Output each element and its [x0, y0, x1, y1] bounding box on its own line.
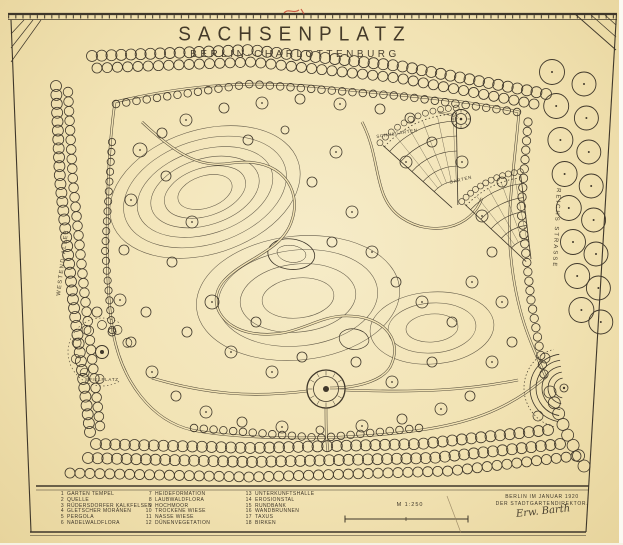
- legend-column-2: 7HEIDEFORMATION 8LAUBWALDFLORA 9HOCHMOOR…: [144, 492, 210, 527]
- scan-edge-right: [619, 0, 623, 545]
- plan-linework: [8, 9, 617, 536]
- page-subtitle: BERLIN·CHARLOTTENBURG: [120, 49, 470, 61]
- plan-sheet: WESTEND-ALLEE REICHS STRASSE SACHSENPLAT…: [0, 0, 623, 545]
- area-label-spielplatz: SPIELPLATZ: [85, 377, 119, 382]
- street-labels: WESTEND-ALLEE REICHS STRASSE: [56, 188, 561, 296]
- street-label-reichsstrasse: REICHS STRASSE: [551, 188, 561, 269]
- legend-column-1: 1GARTEN TEMPEL 2QUELLE 3RÜDERSDORFER KAL…: [56, 492, 152, 527]
- legend-item: 18BIRKEN: [244, 521, 314, 527]
- legend-column-3: 13UNTERKUNFTSHALLE 14EROSIONSTAL 15RUNDB…: [244, 492, 314, 527]
- page-title: SACHSENPLATZ: [120, 23, 470, 47]
- plan-drawing: WESTEND-ALLEE REICHS STRASSE: [0, 0, 623, 545]
- legend-item: 6NADELWALDFLORA: [56, 521, 152, 527]
- title-block: SACHSENPLATZ BERLIN·CHARLOTTENBURG: [120, 24, 470, 60]
- scale-label: M 1:250: [350, 502, 470, 508]
- legend-item: 12DÜNENVEGETATION: [144, 521, 210, 527]
